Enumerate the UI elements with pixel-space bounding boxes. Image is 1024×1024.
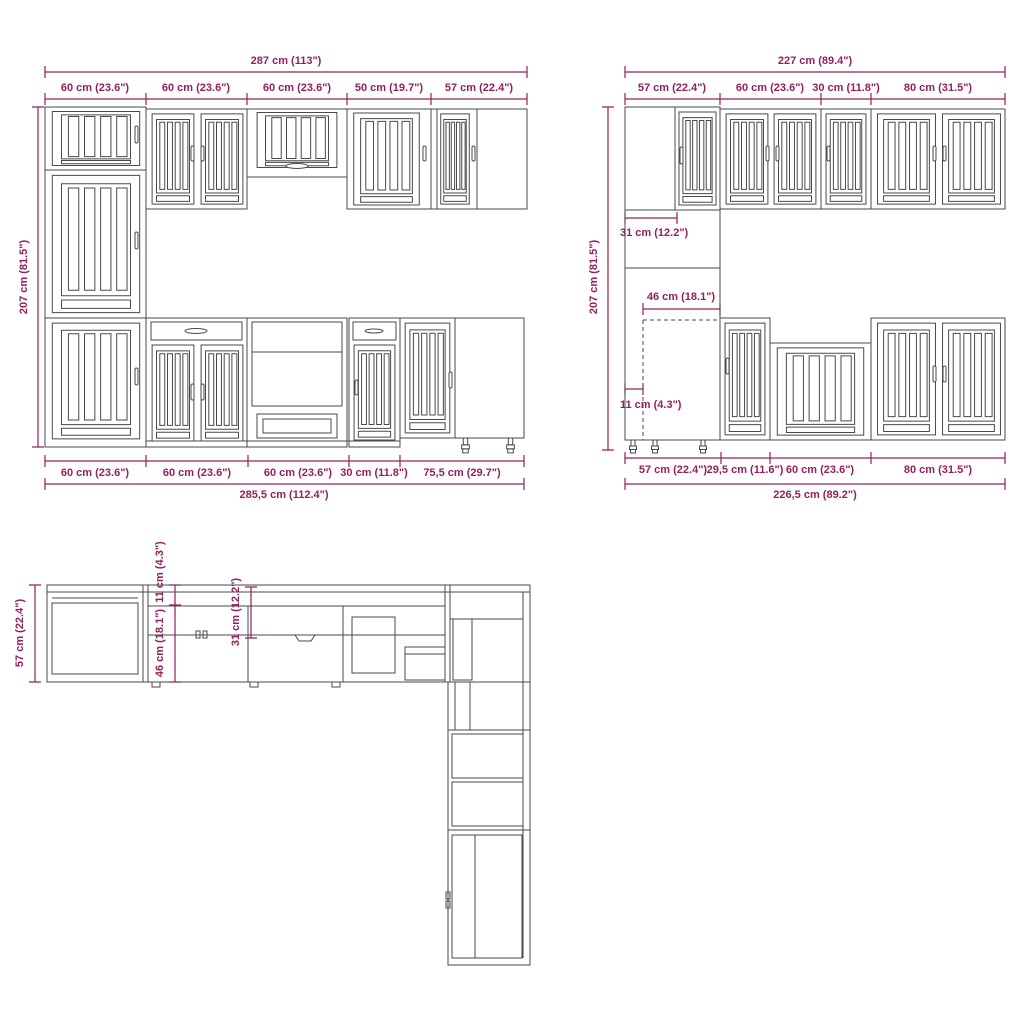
wall-cabinet-50 — [347, 109, 431, 209]
oven-housing — [247, 318, 347, 447]
dim-wall-depth: 31 cm (12.2") — [620, 227, 689, 239]
dim-top-seg-3: 60 cm (23.6") — [263, 82, 332, 94]
dim-wall-depth: 31 cm (12.2") — [230, 578, 242, 647]
dim-total-top: 287 cm (113") — [251, 55, 322, 67]
dims-plan: 57 cm (22.4") 11 cm (4.3") 46 cm (18.1")… — [14, 541, 257, 682]
foot-mark — [250, 682, 258, 687]
dim-top-seg-5: 57 cm (22.4") — [445, 82, 514, 94]
base-cabinet-80-double — [871, 318, 1005, 440]
handle — [943, 146, 946, 161]
dim-bot-seg-2: 60 cm (23.6") — [163, 467, 232, 479]
handle — [423, 146, 426, 161]
foot-mark — [332, 682, 340, 687]
wall-cabinet-hood-60 — [247, 109, 347, 177]
handle — [286, 164, 308, 169]
dim-plinth: 11 cm (4.3") — [154, 541, 166, 603]
handle — [933, 146, 936, 161]
dim-total-bottom: 285,5 cm (112.4") — [240, 489, 329, 501]
base-cabinet-sink-60 — [770, 343, 871, 440]
handle — [827, 146, 830, 161]
dim-base-depth: 46 cm (18.1") — [647, 291, 716, 303]
dim-base-depth: 46 cm (18.1") — [154, 609, 166, 678]
dim-bot-seg-3: 60 cm (23.6") — [264, 467, 333, 479]
dim-bot-seg-2: 29,5 cm (11.6") — [707, 464, 784, 476]
dim-bot-seg-1: 57 cm (22.4") — [639, 464, 708, 476]
handle — [726, 358, 729, 374]
handle — [201, 384, 204, 400]
dim-counter-depth: 57 cm (22.4") — [14, 599, 26, 668]
handle — [776, 146, 779, 161]
dim-top-seg-1: 60 cm (23.6") — [61, 82, 130, 94]
handle — [135, 368, 138, 385]
handle — [185, 329, 207, 334]
dim-plinth: 11 cm (4.3") — [620, 399, 682, 411]
tall-cabinet — [45, 107, 146, 447]
handle — [365, 329, 383, 333]
dim-top-seg-4: 50 cm (19.7") — [355, 82, 424, 94]
handle — [933, 366, 936, 382]
dim-bot-seg-3: 60 cm (23.6") — [786, 464, 855, 476]
foot-mark — [152, 682, 160, 687]
handle — [355, 380, 358, 395]
adjustable-foot — [700, 440, 707, 453]
plan-vertical-run — [446, 682, 530, 958]
handle — [135, 126, 138, 143]
handle — [135, 232, 138, 249]
dimension-diagram-page: 287 cm (113") 60 cm (23.6") 60 cm (23.6"… — [0, 0, 1024, 1024]
wall-cabinet-30 — [821, 109, 871, 209]
wall-cabinet-80-double — [871, 109, 1005, 209]
plan-outline — [47, 585, 530, 965]
dim-top-seg-2: 60 cm (23.6") — [736, 82, 805, 94]
front-elevation-right: 227 cm (89.4") 57 cm (22.4") 60 cm (23.6… — [580, 0, 1024, 515]
base-cabinet-corner-755 — [400, 318, 524, 453]
handle — [191, 146, 194, 161]
front-elevation-left: 287 cm (113") 60 cm (23.6") 60 cm (23.6"… — [0, 0, 545, 515]
sink-opening — [352, 617, 395, 673]
handle — [201, 146, 204, 161]
adjustable-foot — [462, 438, 470, 453]
dim-top-seg-3: 30 cm (11.8") — [812, 82, 880, 94]
handle — [680, 147, 683, 164]
adjustable-foot — [507, 438, 515, 453]
plan-view: 57 cm (22.4") 11 cm (4.3") 46 cm (18.1")… — [0, 520, 560, 1024]
dim-total-top: 227 cm (89.4") — [778, 55, 853, 67]
adjustable-foot — [652, 440, 659, 453]
adjustable-foot — [630, 440, 637, 453]
drawer-notch — [295, 635, 315, 641]
base-cabinet-295 — [720, 318, 770, 440]
wall-cabinet-corner-57 — [431, 109, 527, 209]
handle — [191, 384, 194, 400]
dim-bot-seg-4: 30 cm (11.8") — [340, 467, 408, 479]
base-depth-dashed-outline — [643, 320, 720, 440]
base-cabinet-30 — [349, 318, 400, 447]
dim-bot-seg-1: 60 cm (23.6") — [61, 467, 130, 479]
base-cabinet-60-drawer — [146, 318, 247, 447]
plan-counter-run — [148, 585, 523, 687]
dim-bot-seg-4: 80 cm (31.5") — [904, 464, 973, 476]
dim-top-seg-4: 80 cm (31.5") — [904, 82, 973, 94]
dim-top-seg-1: 57 cm (22.4") — [638, 82, 707, 94]
handle — [943, 366, 946, 382]
dim-height-left: 207 cm (81.5") — [18, 240, 30, 315]
dim-top-seg-2: 60 cm (23.6") — [162, 82, 231, 94]
wall-cabinet-60-double — [146, 109, 247, 209]
handle — [472, 146, 475, 161]
dim-bot-seg-5: 75,5 cm (29.7") — [423, 467, 501, 479]
dim-total-bottom: 226,5 cm (89.2") — [773, 489, 857, 501]
dim-height-right: 207 cm (81.5") — [588, 240, 600, 315]
plan-corner-cabinet — [52, 585, 143, 682]
handle — [449, 372, 452, 388]
handle — [766, 146, 769, 161]
wall-cabinet-60-double — [720, 109, 821, 209]
